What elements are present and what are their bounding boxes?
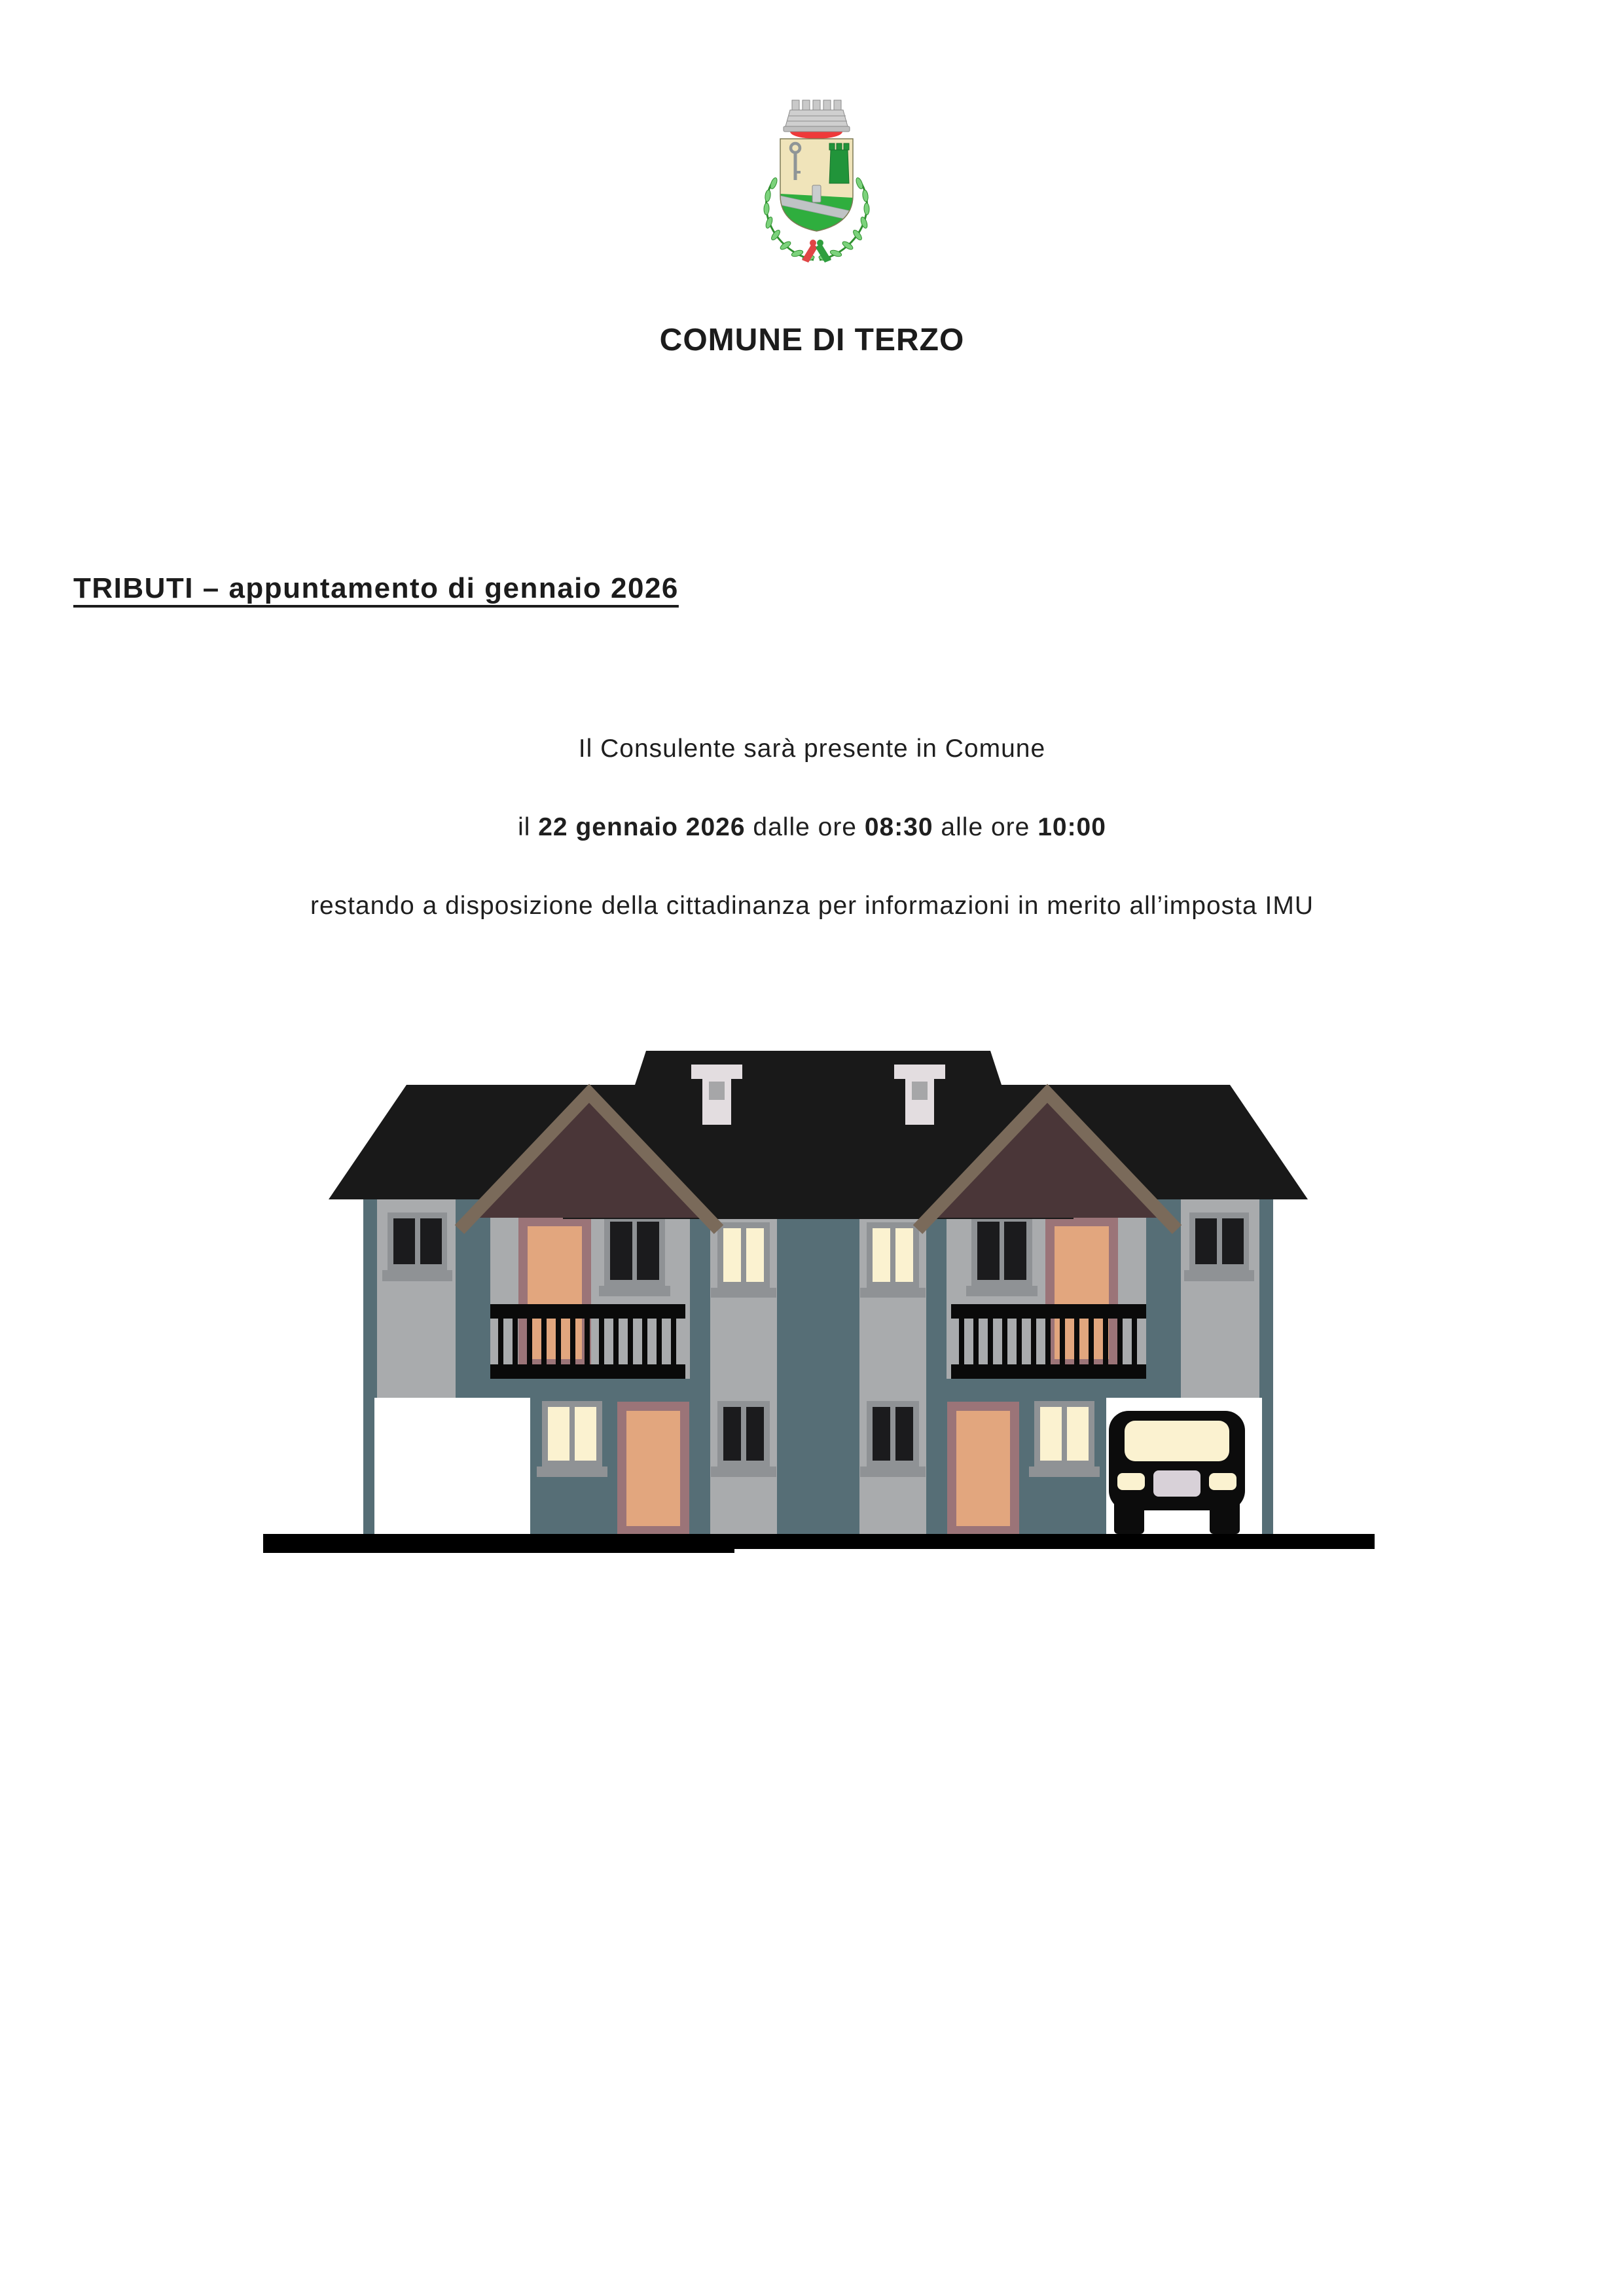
notice-line-presence: Il Consulente sarà presente in Comune [0,735,1624,763]
car-license-plate [1153,1470,1200,1497]
notice-line-info: restando a disposizione della cittadinan… [0,892,1624,920]
house-illustration [262,1041,1375,1591]
window-ground-center-left [711,1401,776,1477]
window-center-right-lit [860,1222,926,1298]
car-headlight-left [1117,1473,1145,1490]
date-value: 22 gennaio 2026 [538,813,745,841]
window-gable-right [966,1216,1038,1296]
datetime-mid-2: alle ore [933,813,1038,841]
car-headlight-right [1209,1473,1236,1490]
datetime-prefix: il [518,813,538,841]
document-page: COMUNE DI TERZO TRIBUTI – appuntamento d… [0,0,1624,2296]
mural-crown-icon [784,100,850,139]
entry-door-right [947,1402,1019,1534]
datetime-mid-1: dalle ore [746,813,865,841]
end-time-value: 10:00 [1038,813,1106,841]
municipality-title: COMUNE DI TERZO [0,322,1624,358]
ground-line [263,1534,1375,1553]
notice-heading: TRIBUTI – appuntamento di gennaio 2026 [73,572,679,605]
milestone [812,185,821,202]
tower-icon [829,143,849,183]
entry-door-left [617,1402,689,1534]
ribbon [802,240,831,263]
notice-heading-text: TRIBUTI – appuntamento di gennaio 2026 [73,572,679,604]
start-time-value: 08:30 [865,813,933,841]
window-ground-right-lit [1029,1401,1100,1477]
window-outer-right [1184,1212,1254,1281]
window-ground-left-lit [537,1401,607,1477]
shield [780,139,853,232]
car-windshield [1125,1421,1229,1461]
window-ground-center-right [860,1401,926,1477]
notice-line-datetime: il 22 gennaio 2026 dalle ore 08:30 alle … [0,813,1624,842]
coat-of-arms [756,96,877,264]
garage-opening-left [374,1398,530,1535]
window-gable-left [599,1216,670,1296]
twin-houses-graphic [262,1041,1375,1591]
window-center-left-lit [711,1222,776,1298]
coat-of-arms-graphic [756,96,877,264]
roof [329,1051,1308,1219]
window-outer-left [382,1212,452,1281]
